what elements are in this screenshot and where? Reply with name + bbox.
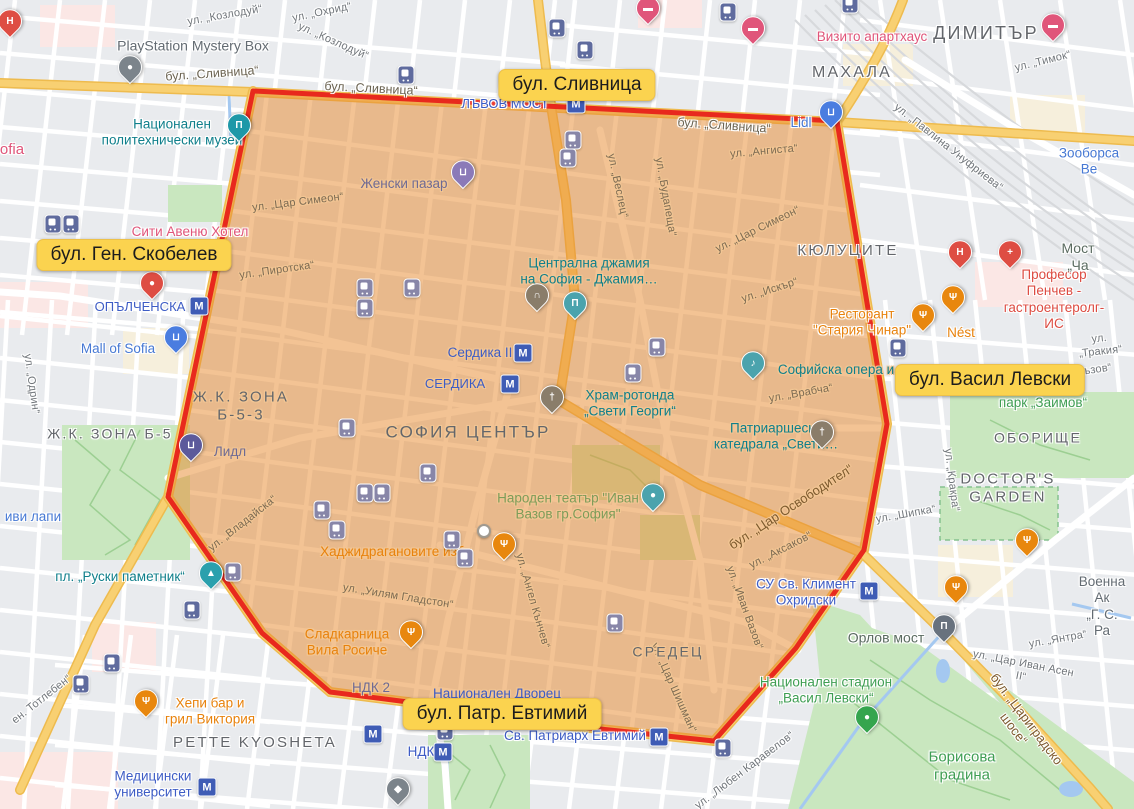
pond xyxy=(936,659,950,683)
lidl-cart-pin-glyph: ⊔ xyxy=(820,101,842,123)
metro-station-icon[interactable]: М xyxy=(501,375,520,394)
tram-stop-icon[interactable] xyxy=(420,464,437,483)
tram-stop-icon[interactable] xyxy=(607,614,624,633)
restaurant-pin-glyph: Ψ xyxy=(400,621,422,643)
bridge-pin-glyph: Π xyxy=(933,615,955,637)
lidl-cart-pin-glyph: ⊔ xyxy=(180,434,202,456)
location-dot xyxy=(477,524,491,538)
tram-stop-icon[interactable] xyxy=(890,339,907,358)
basemap xyxy=(0,0,1134,809)
tram-stop-icon[interactable] xyxy=(357,484,374,503)
church-pin-glyph: † xyxy=(541,386,563,408)
tram-stop-icon[interactable] xyxy=(444,531,461,550)
tram-stop-icon[interactable] xyxy=(715,739,732,758)
tram-stop-icon[interactable] xyxy=(565,131,582,150)
tram-stop-icon[interactable] xyxy=(842,0,859,14)
restaurant-pin-glyph: Ψ xyxy=(493,533,515,555)
park-area xyxy=(940,487,1058,540)
tram-stop-icon[interactable] xyxy=(398,66,415,85)
mosque-pin-glyph: ∩ xyxy=(526,284,548,306)
metro-station-icon[interactable]: М xyxy=(434,743,453,762)
market-cart-pin-glyph: ⊔ xyxy=(452,161,474,183)
hotel-pin-glyph: ▬ xyxy=(1042,14,1064,36)
restaurant-pin-glyph: Ψ xyxy=(945,576,967,598)
metro-station-icon[interactable]: М xyxy=(860,582,879,601)
tram-stop-icon[interactable] xyxy=(45,215,62,234)
restaurant-pin-glyph: Ψ xyxy=(1016,529,1038,551)
tram-stop-icon[interactable] xyxy=(314,501,331,520)
tram-stop-icon[interactable] xyxy=(357,299,374,318)
tram-stop-icon[interactable] xyxy=(720,3,737,22)
metro-station-icon[interactable]: М xyxy=(190,297,209,316)
tram-stop-icon[interactable] xyxy=(339,419,356,438)
hotel-pin-glyph: ▬ xyxy=(637,0,659,19)
road-badge: бул. Ген. Скобелев xyxy=(37,239,232,271)
map-canvas[interactable]: ул. „Козлодуй“ул. „Охрид“ул. „Козлодуй“б… xyxy=(0,0,1134,809)
museum-pin-glyph: Π xyxy=(228,114,250,136)
playstation-pin-glyph: ● xyxy=(119,56,141,78)
tram-stop-icon[interactable] xyxy=(357,279,374,298)
hospital-pin-glyph: + xyxy=(999,241,1021,263)
tram-stop-icon[interactable] xyxy=(549,19,566,38)
road-badge: бул. Патр. Евтимий xyxy=(403,698,602,730)
hotel-pin-glyph: ▬ xyxy=(742,17,764,39)
tram-stop-icon[interactable] xyxy=(457,549,474,568)
hospital-pin-glyph: H xyxy=(0,10,21,32)
metro-station-icon[interactable]: М xyxy=(198,778,217,797)
metro-station-icon[interactable]: М xyxy=(364,725,383,744)
metro-station-icon[interactable]: М xyxy=(514,344,533,363)
road-badge: бул. Сливница xyxy=(498,69,655,101)
mall-cart-pin-glyph: ⊔ xyxy=(165,326,187,348)
tram-stop-icon[interactable] xyxy=(374,484,391,503)
tram-stop-icon[interactable] xyxy=(649,338,666,357)
metro-station-icon[interactable]: М xyxy=(650,728,669,747)
stadium-pin-glyph: ● xyxy=(856,706,878,728)
park-area xyxy=(168,185,222,222)
road-badge: бул. Васил Левски xyxy=(895,364,1085,396)
university-pin-glyph: ◆ xyxy=(387,778,409,800)
tram-stop-icon[interactable] xyxy=(329,521,346,540)
restaurant-pin-glyph: Ψ xyxy=(942,286,964,308)
tram-stop-icon[interactable] xyxy=(73,675,90,694)
tram-stop-icon[interactable] xyxy=(63,215,80,234)
tram-stop-icon[interactable] xyxy=(577,41,594,60)
theater-pin-glyph: ● xyxy=(642,484,664,506)
museum-pin-glyph: Π xyxy=(564,292,586,314)
park-area xyxy=(950,392,1134,478)
tram-stop-icon[interactable] xyxy=(404,279,421,298)
tram-stop-icon[interactable] xyxy=(104,654,121,673)
tram-stop-icon[interactable] xyxy=(625,364,642,383)
tram-stop-icon[interactable] xyxy=(225,563,242,582)
church-pin-glyph: † xyxy=(811,421,833,443)
tram-stop-icon[interactable] xyxy=(184,601,201,620)
hotel-pin-glyph: ● xyxy=(141,272,163,294)
monument-pin-glyph: ▲ xyxy=(200,562,222,584)
opera-music-pin-glyph: ♪ xyxy=(742,352,764,374)
tram-stop-icon[interactable] xyxy=(560,149,577,168)
hospital-pin-glyph: H xyxy=(949,241,971,263)
restaurant-pin-glyph: Ψ xyxy=(135,690,157,712)
restaurant-pin-glyph: Ψ xyxy=(912,304,934,326)
